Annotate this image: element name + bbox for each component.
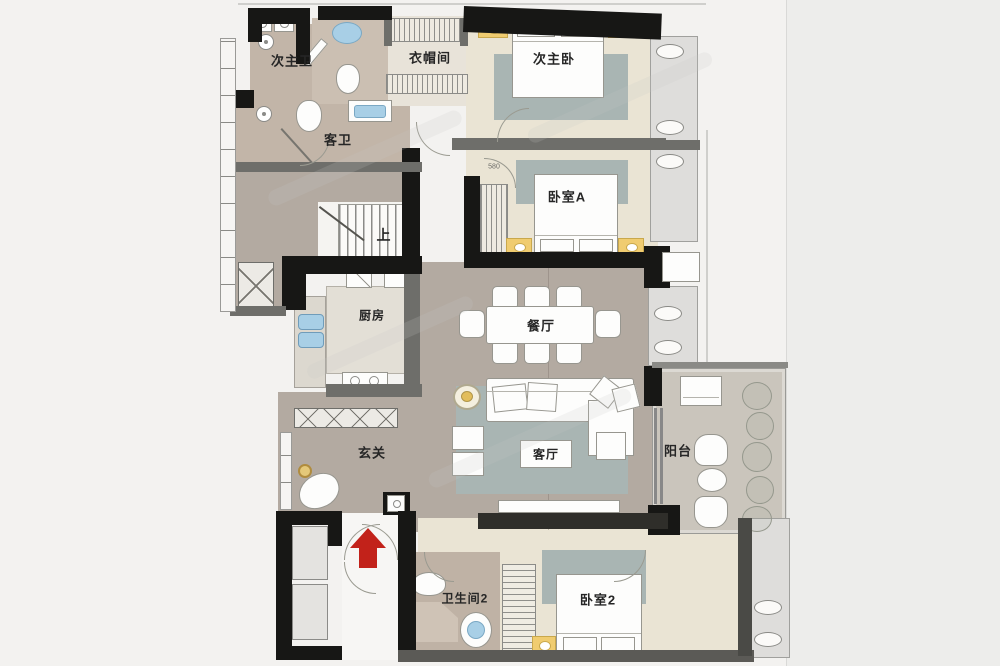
wall	[648, 140, 700, 150]
dining-chair	[595, 310, 621, 338]
side-table	[452, 426, 484, 450]
ac-unit	[654, 306, 682, 321]
plant	[746, 412, 774, 440]
wall	[652, 362, 788, 368]
sink	[332, 22, 362, 44]
plant-pot	[453, 384, 481, 410]
room-label-guest-bath: 客卫	[324, 130, 352, 149]
shaft-box	[292, 526, 328, 580]
building-outline-right	[706, 130, 708, 368]
ottoman	[596, 432, 626, 460]
entrance-arrow-icon	[350, 528, 386, 570]
stairs-treads	[338, 204, 408, 260]
wall-tv	[478, 513, 668, 529]
wall	[398, 511, 416, 660]
bedroom-a-wardrobe	[480, 184, 508, 254]
wall	[230, 306, 286, 316]
toilet	[296, 100, 322, 132]
wall	[326, 384, 422, 397]
room-label-kitchen: 厨房	[359, 307, 385, 324]
page-edge	[786, 0, 1000, 666]
sink	[467, 621, 485, 639]
wall	[318, 6, 392, 20]
wall	[398, 650, 754, 662]
wall	[276, 511, 292, 660]
window	[220, 38, 236, 312]
balcony-slider	[660, 408, 663, 504]
plant	[742, 442, 772, 472]
plant	[742, 382, 772, 410]
entry-shoe-cabinet	[294, 408, 398, 428]
room-label-cloakroom: 衣帽间	[409, 48, 451, 67]
room-label-second-master-bedroom: 次主卧	[533, 49, 575, 68]
dimension-label: 580	[488, 164, 500, 171]
cloakroom-wardrobe-bottom	[386, 74, 468, 94]
wall	[738, 518, 752, 656]
shower-head-icon	[256, 106, 272, 122]
kitchen-sink	[298, 314, 324, 330]
bath-vanity	[348, 100, 392, 122]
wall	[276, 646, 342, 660]
room-label-living: 客厅	[533, 446, 559, 463]
hall-cabinet	[238, 262, 274, 310]
ac-unit	[656, 154, 684, 169]
balcony-table	[697, 468, 727, 492]
wall	[644, 366, 662, 406]
balcony-slider	[654, 408, 657, 504]
room-label-bathroom-2: 卫生间2	[442, 590, 489, 607]
window	[280, 432, 292, 510]
wall	[328, 524, 342, 546]
ac-unit	[656, 120, 684, 135]
wall	[452, 138, 666, 150]
wall	[248, 8, 262, 42]
plant	[746, 476, 774, 504]
balcony-chair	[694, 434, 728, 466]
toilet	[336, 64, 360, 94]
wall	[464, 252, 666, 268]
ac-unit	[754, 600, 782, 615]
ac-platform-box	[662, 252, 700, 282]
room-label-entry: 玄关	[358, 443, 386, 462]
shaft-box	[292, 584, 328, 640]
kitchen-sink	[298, 332, 324, 348]
ac-unit	[654, 340, 682, 355]
room-label-dining: 餐厅	[527, 316, 555, 335]
bed-bedroom-2	[556, 574, 642, 654]
room-label-bedroom-2: 卧室2	[580, 590, 616, 609]
ac-unit	[754, 632, 782, 647]
wall	[282, 256, 306, 310]
building-outline-top	[238, 3, 706, 5]
tv-cabinet	[498, 500, 620, 513]
floor-plan: 次主卫 客卫 衣帽间 次主卧 卧室A 上 厨房 餐厅 玄关 客厅 阳台 卫生间2…	[0, 0, 1000, 666]
cloakroom-post-left	[384, 18, 392, 46]
room-label-balcony: 阳台	[664, 441, 692, 460]
dining-chair	[459, 310, 485, 338]
bedroom-2-wardrobe	[502, 564, 536, 656]
room-label-ensuite-bath: 次主卫	[271, 51, 313, 70]
ac-unit	[656, 44, 684, 59]
balcony-chair	[694, 496, 728, 528]
room-label-bedroom-a: 卧室A	[548, 187, 586, 206]
stairs-up-label: 上	[377, 225, 392, 245]
niche-box	[387, 495, 405, 512]
cloakroom-wardrobe-top	[388, 18, 466, 42]
balcony-washer	[680, 376, 722, 406]
